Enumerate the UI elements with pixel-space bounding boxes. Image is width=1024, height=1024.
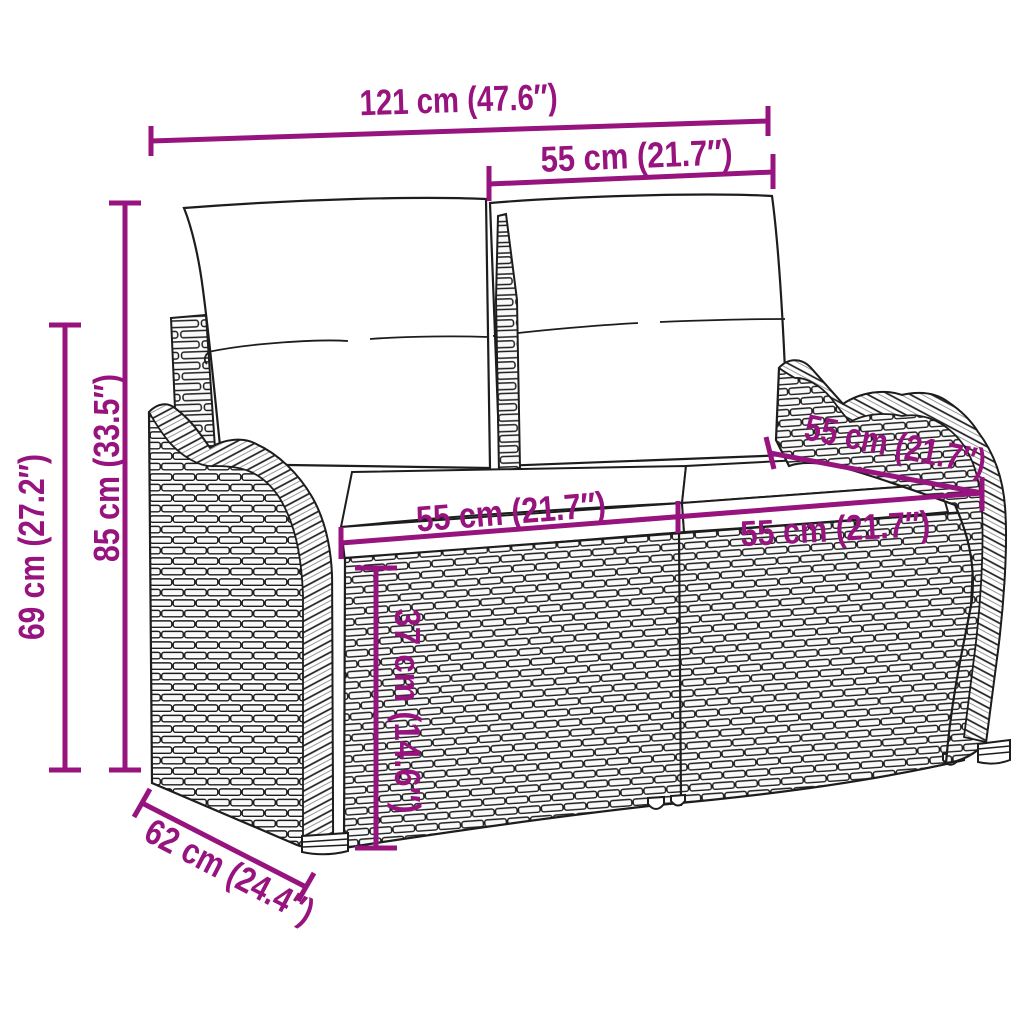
svg-text:121 cm (47.6″): 121 cm (47.6″) bbox=[359, 76, 558, 124]
svg-text:69 cm (27.2″): 69 cm (27.2″) bbox=[11, 454, 52, 640]
svg-text:37 cm (14.6″): 37 cm (14.6″) bbox=[387, 609, 428, 814]
svg-text:55 cm (21.7″): 55 cm (21.7″) bbox=[540, 131, 733, 180]
svg-text:85 cm (33.5″): 85 cm (33.5″) bbox=[86, 374, 127, 562]
